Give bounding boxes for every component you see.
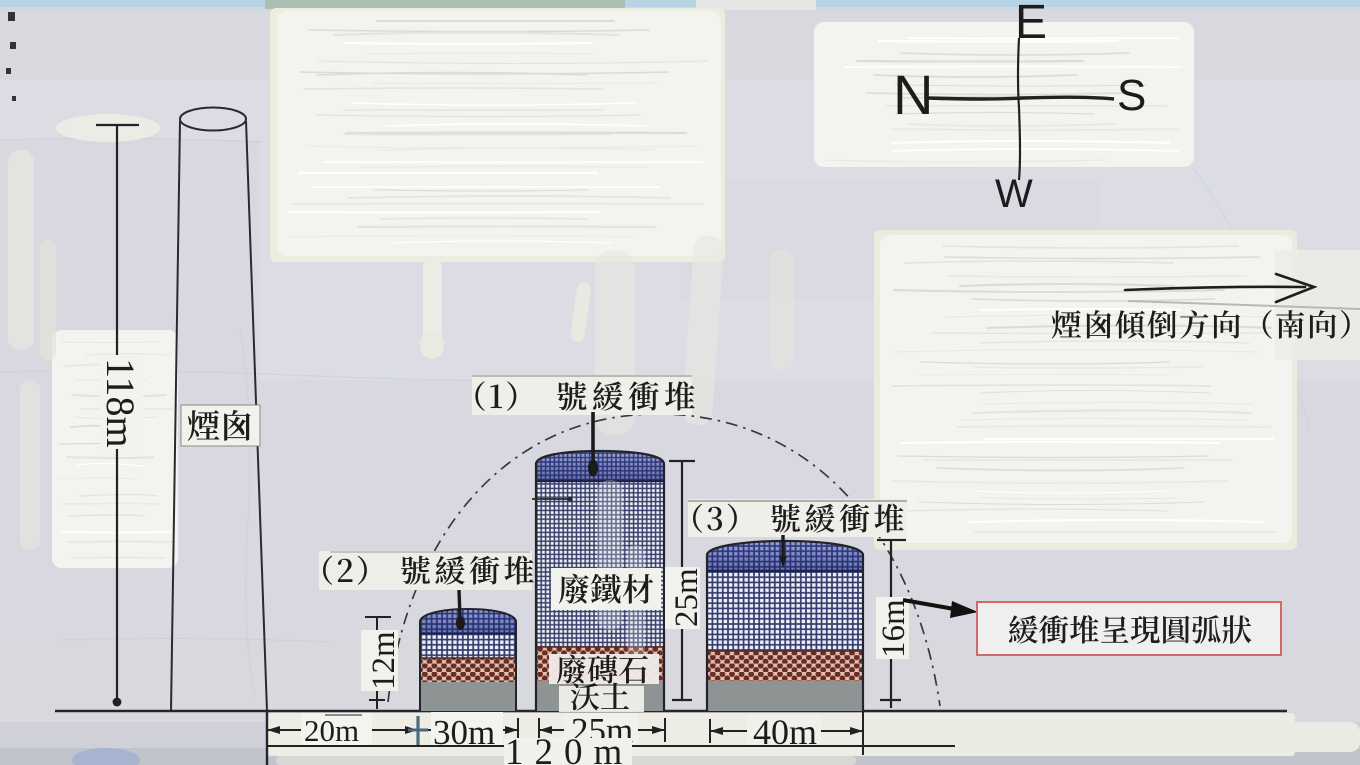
svg-text:118m: 118m xyxy=(98,358,143,448)
svg-text:W: W xyxy=(995,172,1033,216)
svg-text:S: S xyxy=(1117,71,1146,120)
svg-text:20m: 20m xyxy=(304,713,359,748)
svg-text:120m: 120m xyxy=(505,732,633,765)
svg-text:N: N xyxy=(893,63,933,126)
svg-text:E: E xyxy=(1015,0,1047,49)
svg-text:25m: 25m xyxy=(669,568,705,627)
svg-text:12m: 12m xyxy=(366,631,402,690)
svg-text:16m: 16m xyxy=(876,599,912,658)
